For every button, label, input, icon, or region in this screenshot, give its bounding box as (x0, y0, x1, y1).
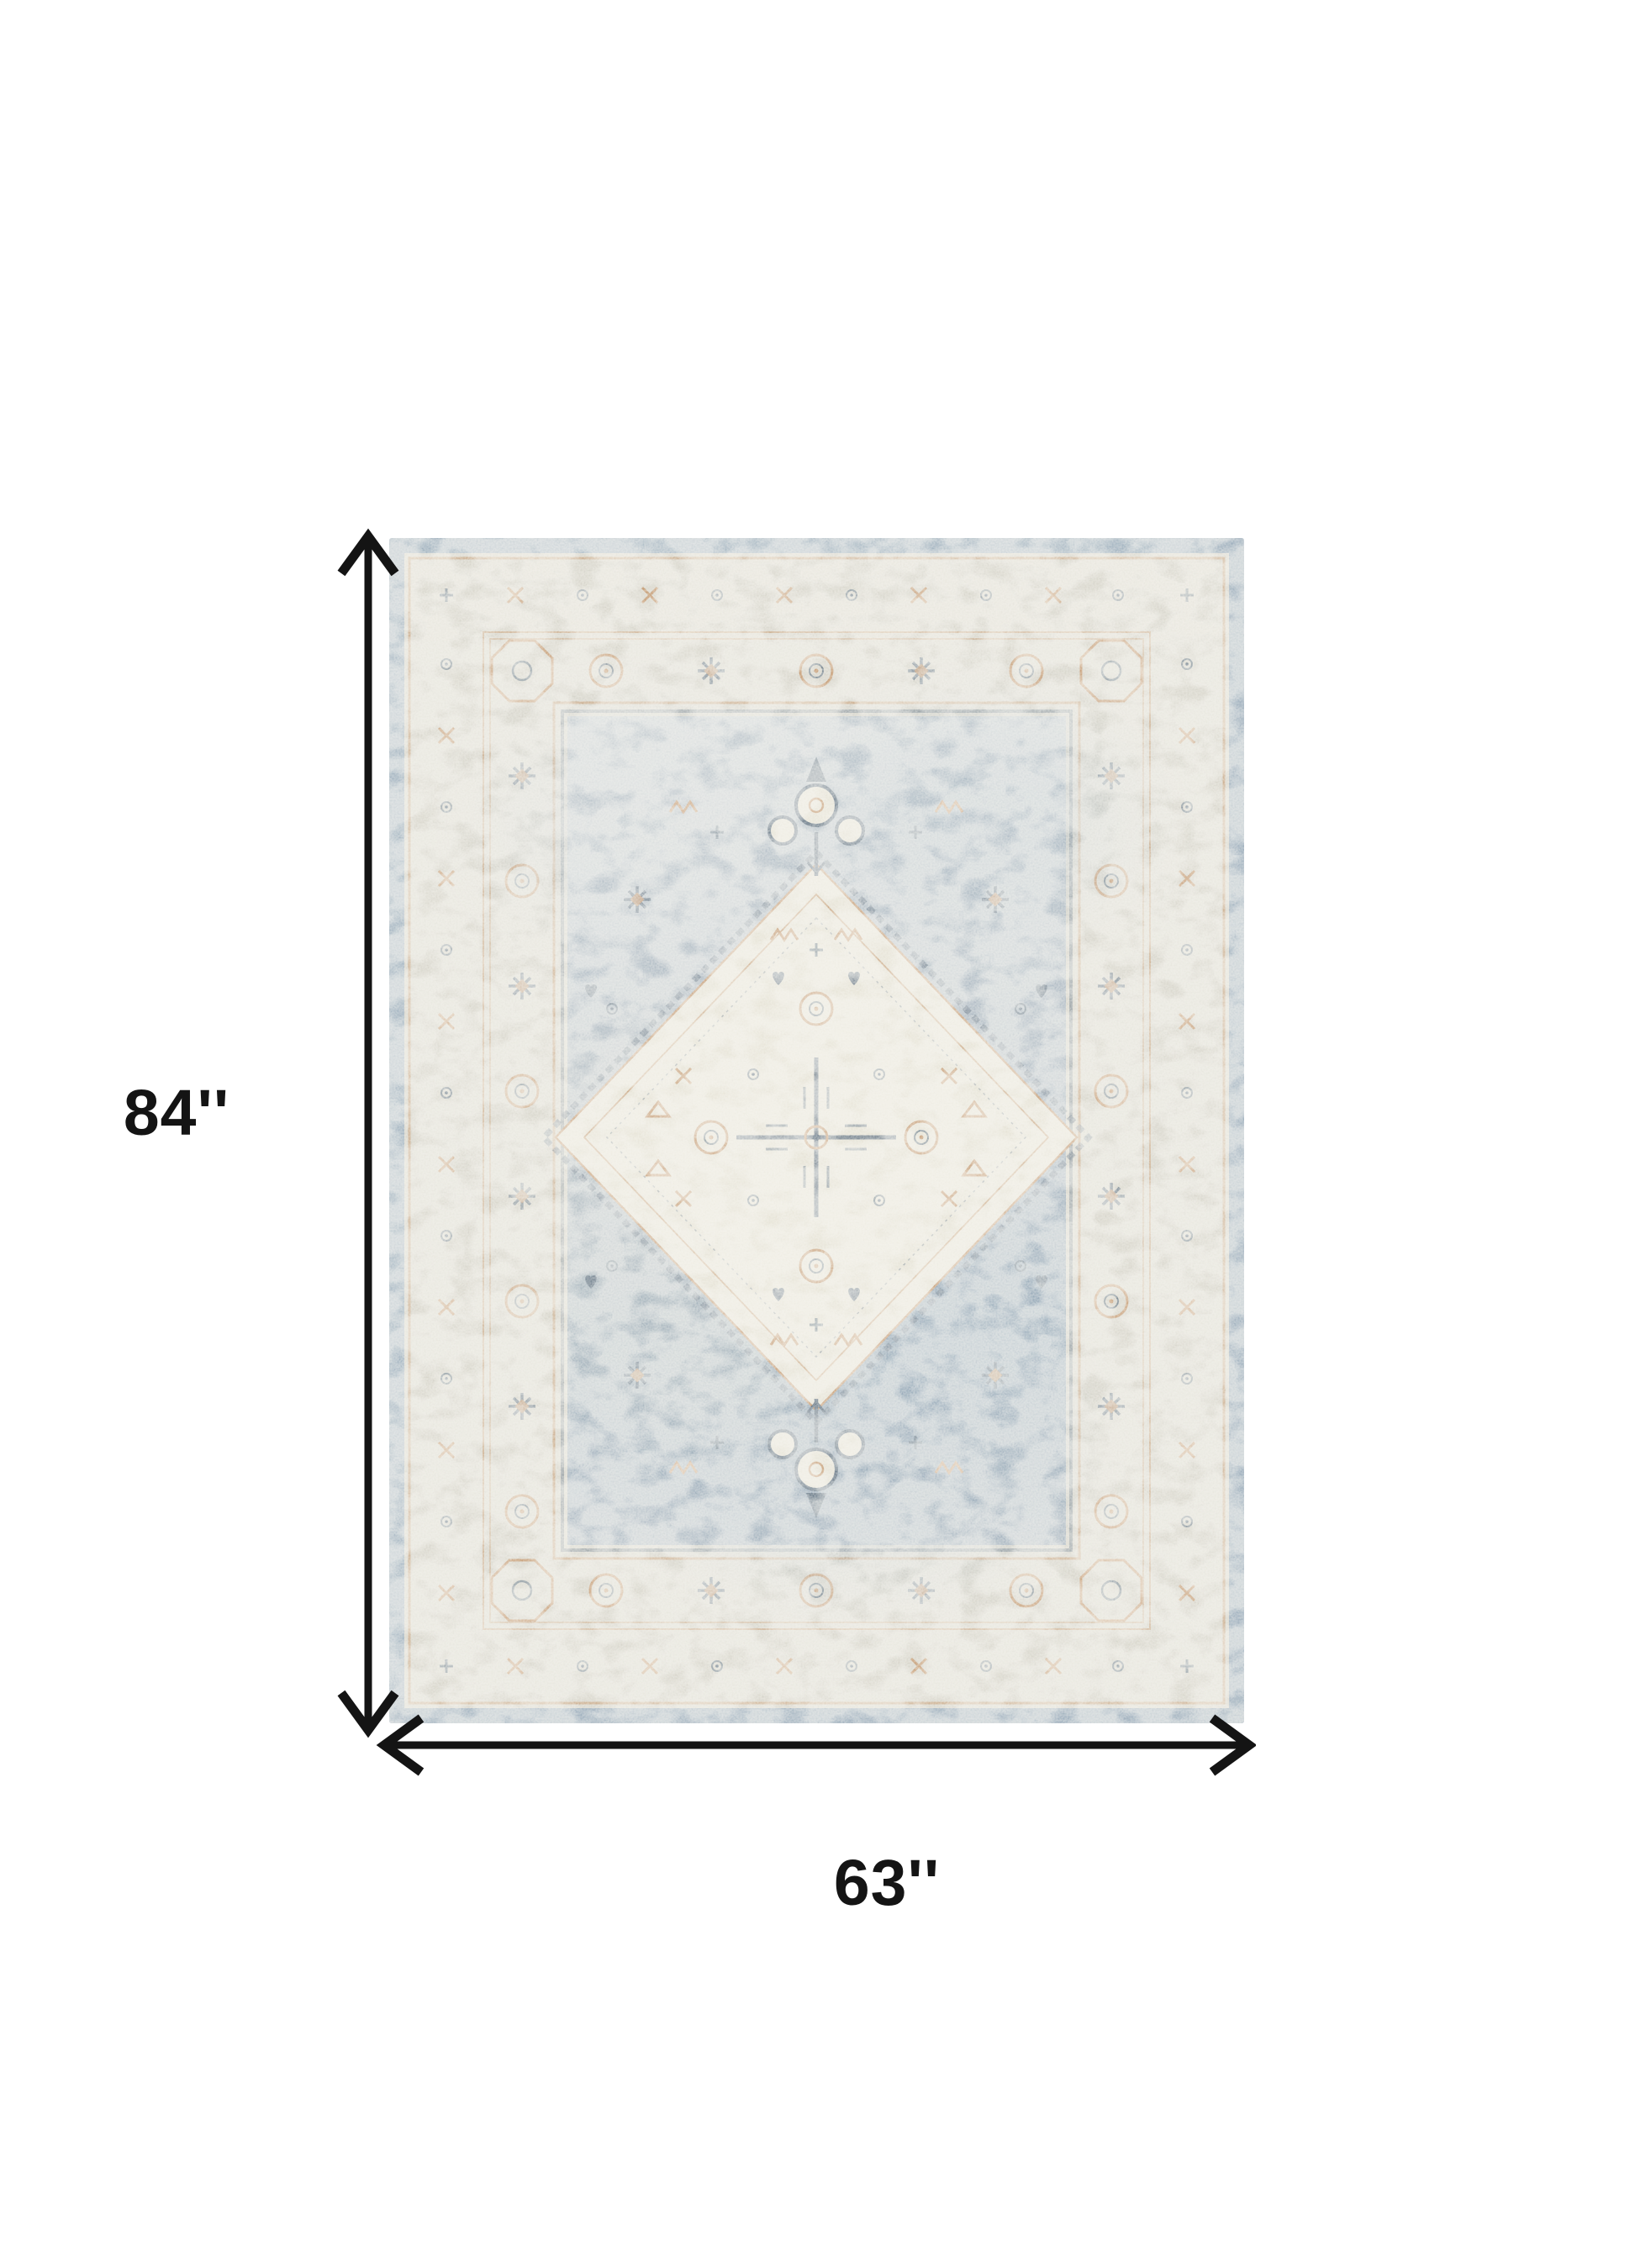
width-dimension-label: 63'' (748, 1851, 1026, 1916)
width-dimension-arrow-icon (373, 1710, 1256, 1780)
product-dimension-diagram: 84'' 63'' (0, 0, 1635, 2268)
rug-image (389, 538, 1244, 1723)
rug-figure (389, 538, 1244, 1723)
height-dimension-label: 84'' (38, 1081, 315, 1146)
height-dimension-arrow-icon (333, 523, 403, 1743)
